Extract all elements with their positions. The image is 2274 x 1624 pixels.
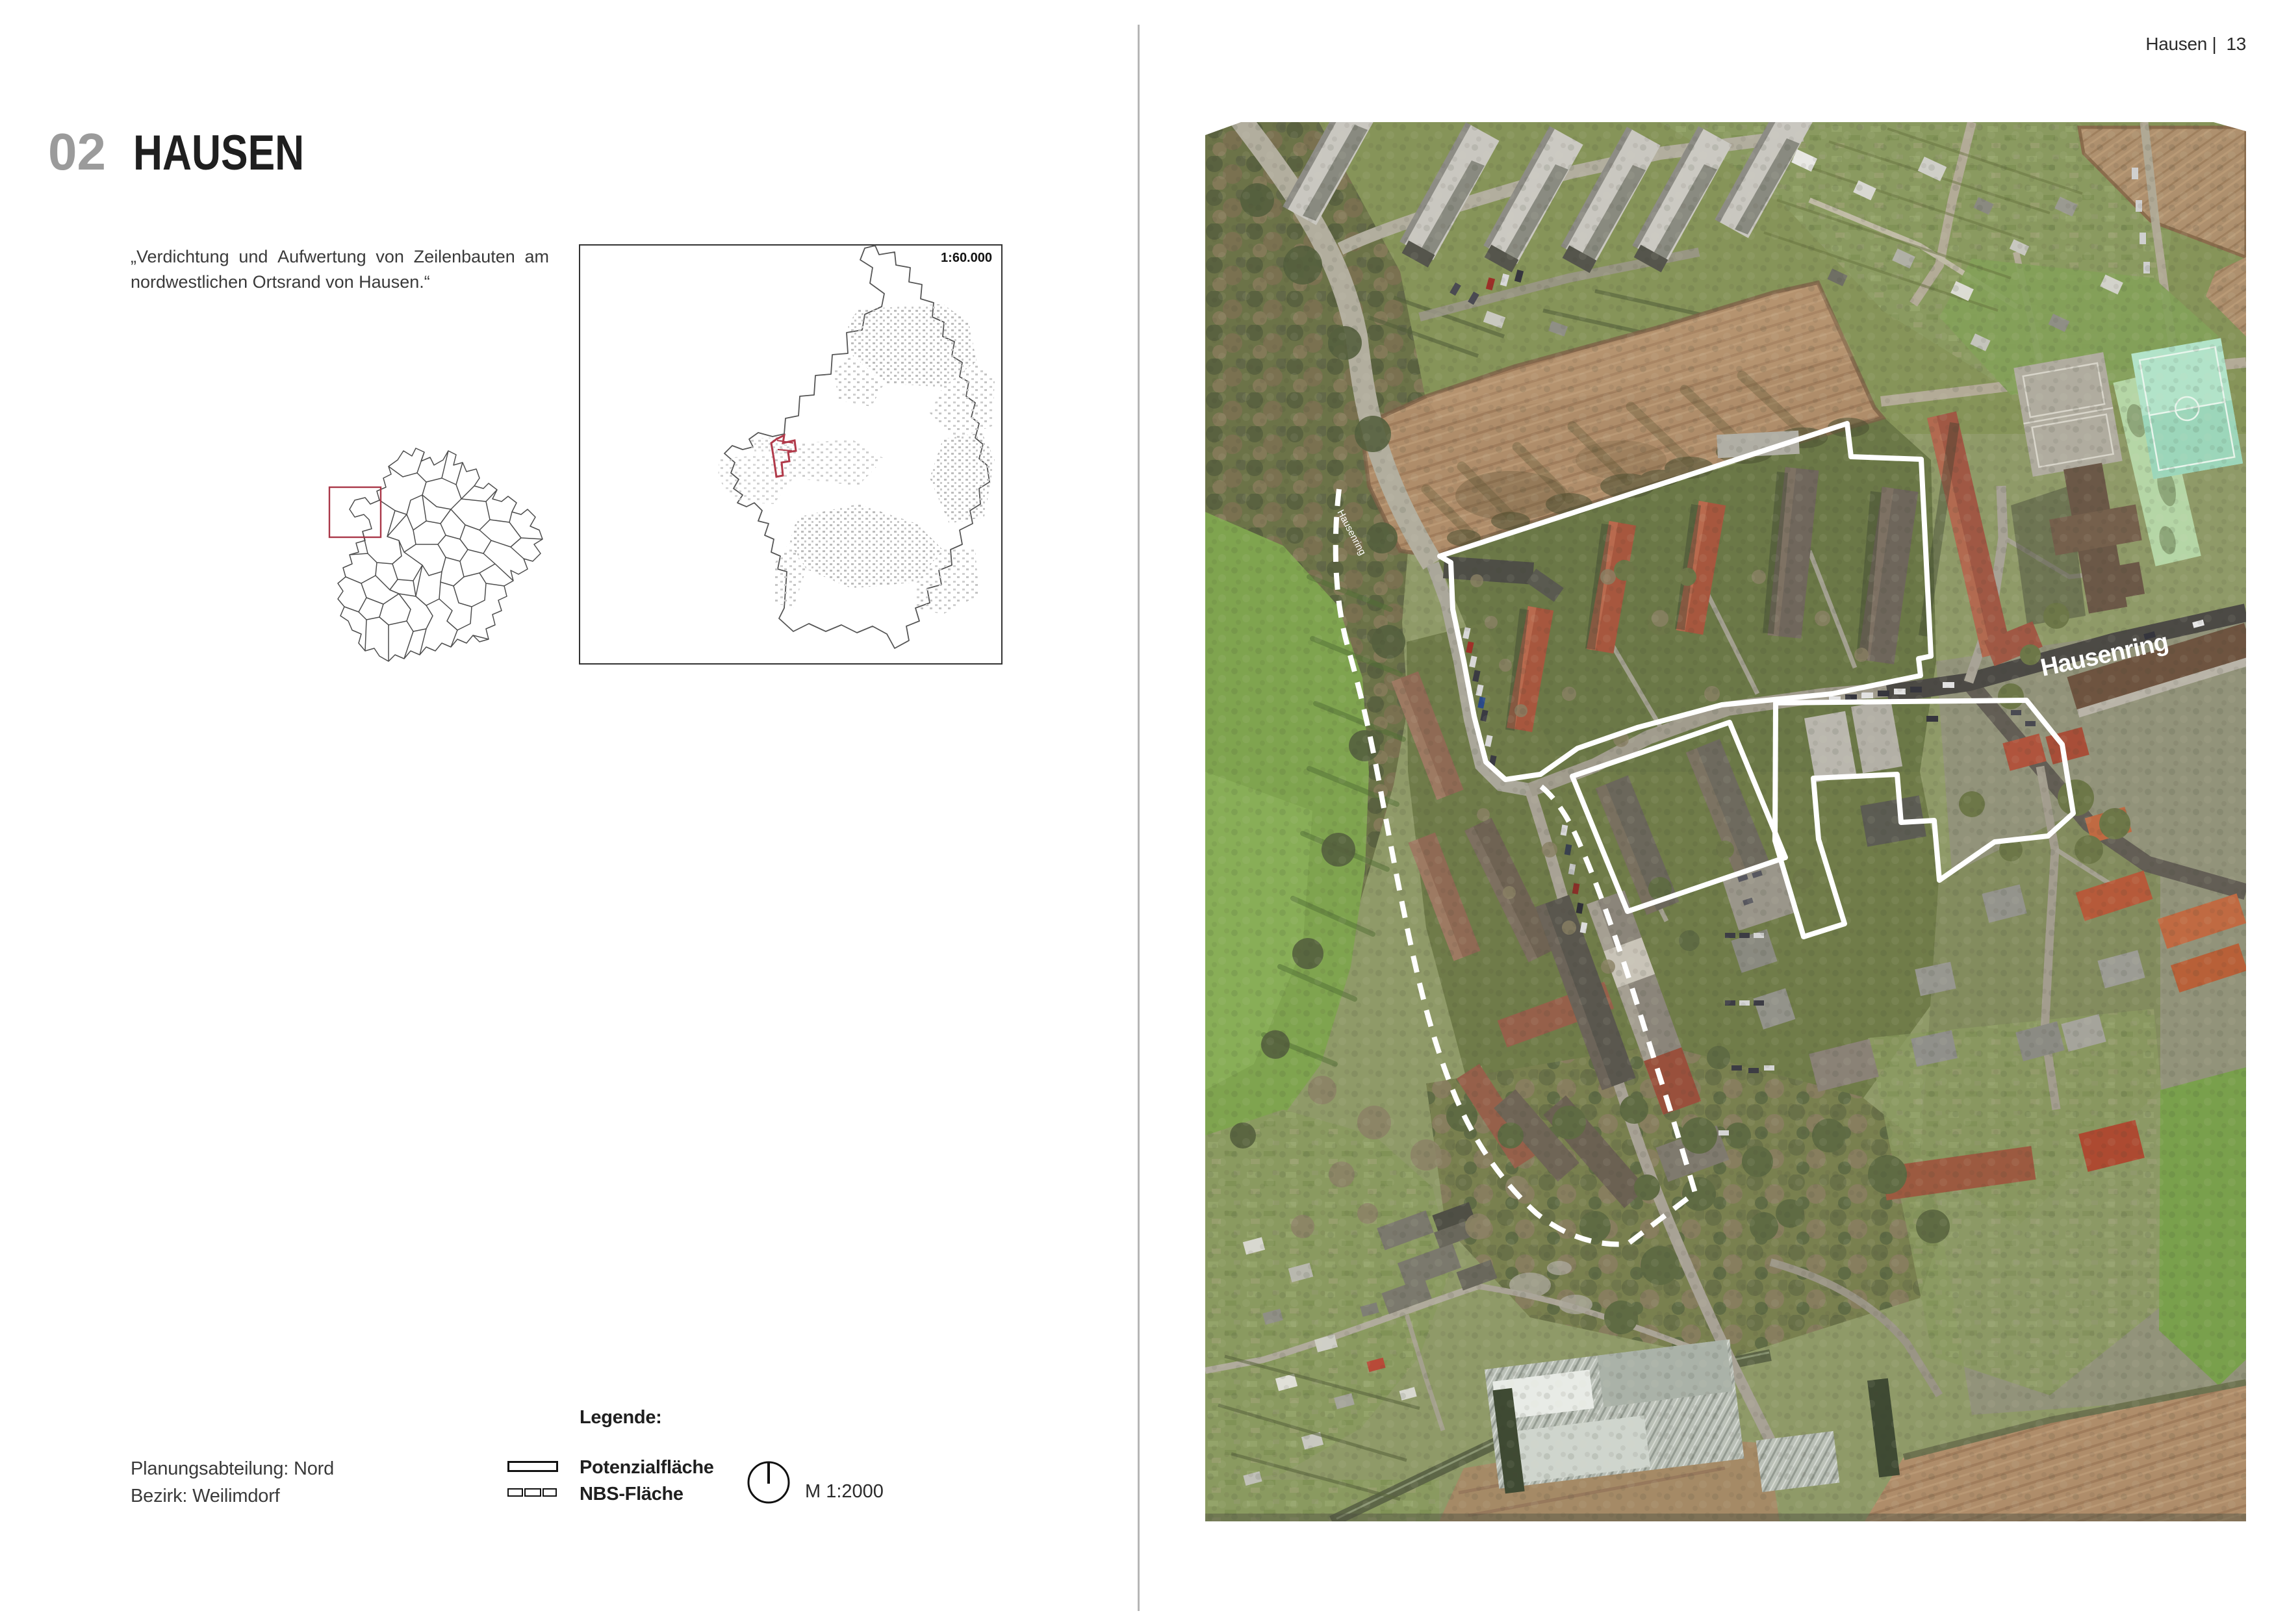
svg-text:1:60.000: 1:60.000 bbox=[941, 251, 992, 265]
